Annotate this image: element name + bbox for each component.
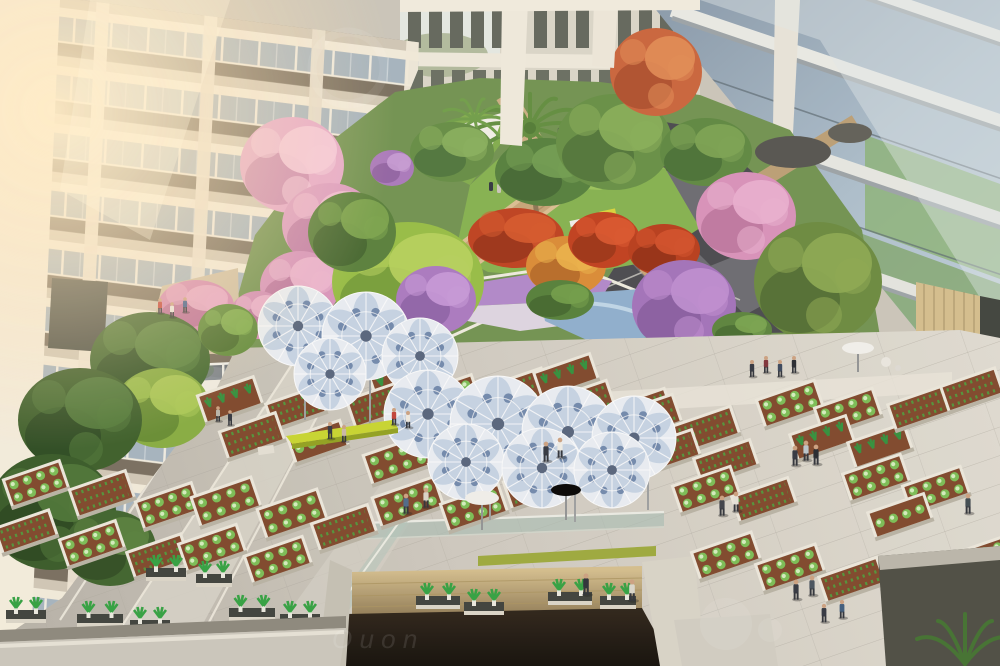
svg-text:O u o n: O u o n [332, 624, 417, 654]
